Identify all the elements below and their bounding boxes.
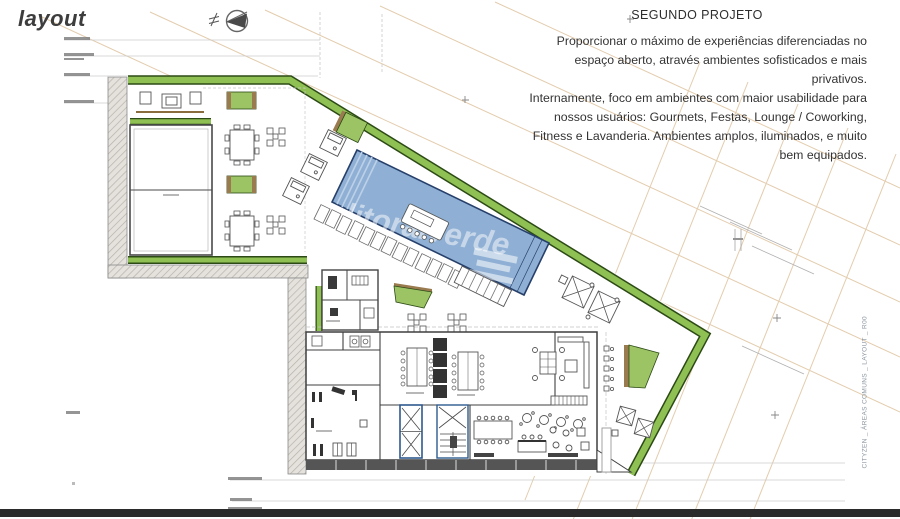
main-building <box>306 332 631 472</box>
sheet-vertical-label: CITYZEN _ ÁREAS COMUNS _ LAYOUT _ R00 <box>862 329 873 469</box>
sauna-block <box>322 270 378 330</box>
sports-court <box>130 125 212 255</box>
description-paragraph-1: Proporcionar o máximo de experiências di… <box>527 32 867 89</box>
description-heading: SEGUNDO PROJETO <box>527 8 867 22</box>
project-description-panel: SEGUNDO PROJETO Proporcionar o máximo de… <box>527 8 867 165</box>
layout-sheet: litoralverde <box>0 0 900 519</box>
north-arrow-icon <box>209 11 248 32</box>
page-title: layout <box>18 6 86 32</box>
description-paragraph-2: Internamente, foco em ambientes com maio… <box>527 89 867 165</box>
bottom-bar <box>0 509 900 517</box>
